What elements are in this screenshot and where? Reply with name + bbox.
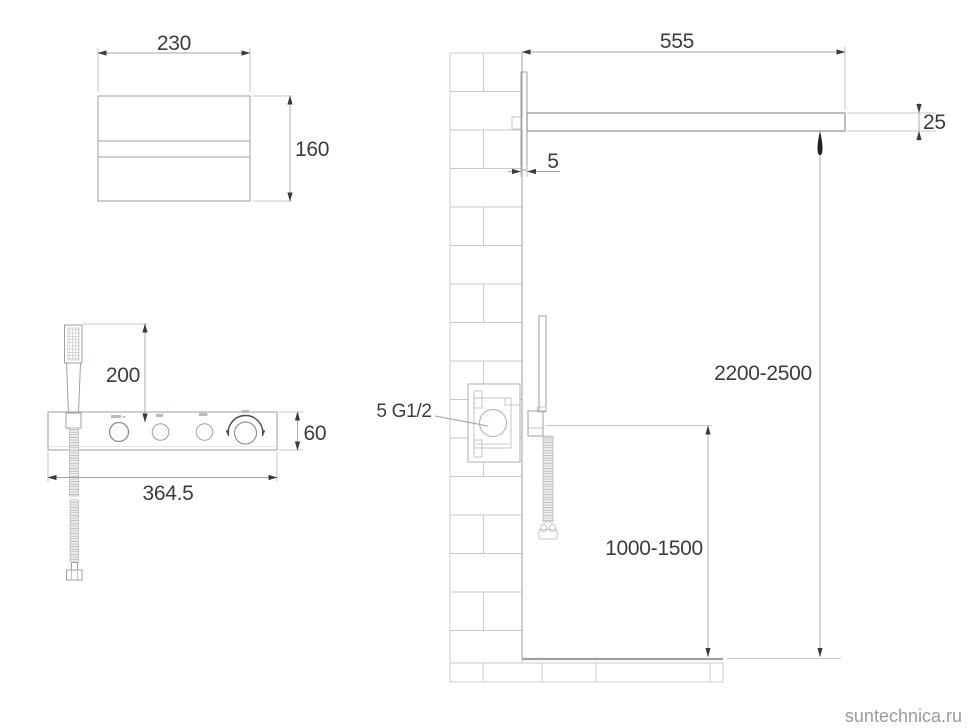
hand-shower-side [528,316,557,539]
label-arm-length: 555 [660,30,694,53]
thermostat-rotation-arc [228,415,263,436]
control-panel-outline [48,412,277,450]
label-head-height-range: 2200-2500 [714,362,812,385]
shower-holder-bracket [528,411,543,436]
front-plate-view [98,96,250,201]
spray-face-grid [68,328,80,360]
label-plate-thickness: 5 [547,150,558,173]
diverter-knob-1 [110,423,129,442]
dim-60 [279,412,303,450]
floor-section [450,659,723,682]
hose-end-nut [67,570,83,580]
watermark: suntechnica.ru [845,706,962,726]
label-connection: 5 G1/2 [376,401,431,422]
diverter-knob-3 [196,424,213,441]
hose-connector-cone [66,413,81,428]
shower-system-drawing: 230 160 200 60 364.5 555 25 5 5 G1/2 220… [0,0,970,728]
label-panel-width: 364.5 [142,482,193,505]
hand-shower-front [65,325,83,428]
technical-drawing-canvas: 230 160 200 60 364.5 555 25 5 5 G1/2 220… [0,0,970,728]
dim-555 [522,46,845,110]
label-plate-height: 160 [295,138,329,161]
shower-hose-side [543,436,553,522]
plate-front-outline [98,96,250,201]
dim-2200-2500 [727,155,841,659]
shower-hose-front [67,428,83,580]
hand-shower-handle-side [539,316,546,411]
knob-icon-2 [156,414,163,417]
floor-slab [450,663,723,682]
label-panel-height: 60 [304,422,327,445]
label-handset-height-range: 1000-1500 [605,537,703,560]
thermostat-knob [235,422,257,444]
knob-icon-4 [242,410,249,413]
knob-icon-3 [199,413,208,416]
wall-section [450,53,522,663]
dim-364-5 [48,452,277,482]
front-panel-view [48,325,277,580]
water-drop-arrow [818,131,823,155]
hose-end-fitting-side [539,525,557,540]
hand-shower-handle [67,363,81,413]
waterfall-arm [527,113,845,131]
label-plate-width: 230 [157,32,191,55]
label-arm-thickness: 25 [923,111,946,134]
label-handshower-offset: 200 [106,364,140,387]
mixer-outlet-circle [480,410,507,437]
knob-icon-1 [111,415,126,418]
concealed-mixer-box [468,384,520,462]
dim-160 [253,96,292,201]
diverter-knob-2 [152,424,169,441]
